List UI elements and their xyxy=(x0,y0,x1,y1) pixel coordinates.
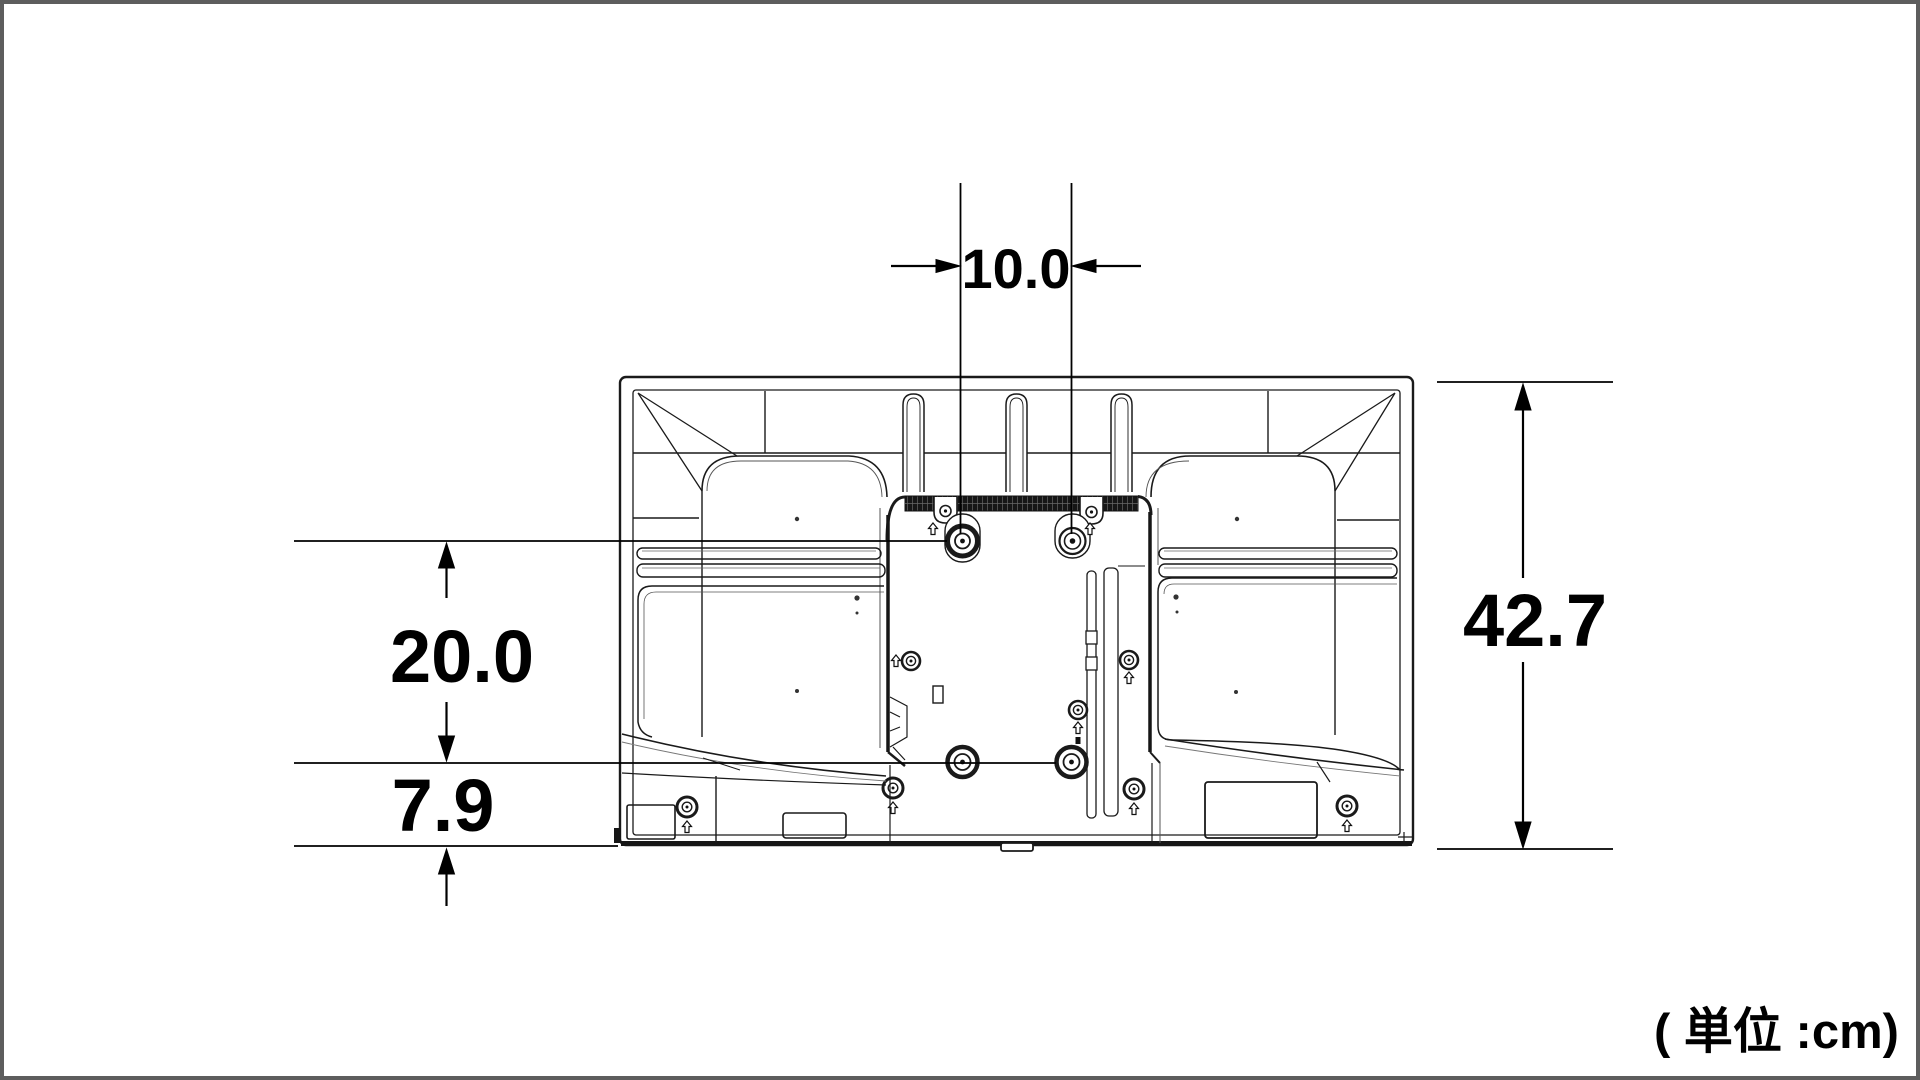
arrowhead-up xyxy=(1515,384,1531,410)
corner-fan-right xyxy=(1297,393,1395,491)
arrow-mark xyxy=(683,821,692,833)
arrow-mark xyxy=(1343,820,1352,832)
dimension-diagram-page: 10.0 20.0 7.9 42.7 ( 単位 :cm) xyxy=(0,0,1920,1080)
arrow-mark xyxy=(1125,672,1134,684)
screw xyxy=(1069,701,1087,719)
unit-note: ( 単位 :cm) xyxy=(1654,1005,1899,1059)
tv-rear-outline xyxy=(614,377,1413,851)
arrowhead-up xyxy=(439,543,455,568)
vesa-holes xyxy=(945,514,1090,777)
arrowhead-down xyxy=(1515,822,1531,848)
screw xyxy=(1120,651,1138,669)
vesa-hole-bottom-right xyxy=(1057,747,1087,777)
dim-left-column xyxy=(294,541,1056,906)
center-label xyxy=(783,813,846,838)
arrowhead-up xyxy=(439,849,455,874)
chassis-screws xyxy=(677,523,1357,833)
connector-panel xyxy=(1205,782,1317,838)
dim-label-vertical-spacing: 20.0 xyxy=(390,615,534,698)
arrow-mark xyxy=(1074,722,1083,734)
cable-hooks xyxy=(903,394,1132,492)
tv-bottom-tab xyxy=(1001,843,1033,851)
cable-hook-middle xyxy=(1006,394,1027,492)
cable-hook-right xyxy=(1111,394,1132,492)
dim-label-horizontal-spacing: 10.0 xyxy=(962,237,1071,300)
arrowhead-down xyxy=(439,736,455,761)
tv-left-foot xyxy=(614,828,621,843)
dim-label-overall-height: 42.7 xyxy=(1463,579,1607,662)
screw xyxy=(1337,796,1357,816)
screw xyxy=(902,652,920,670)
vent-slots xyxy=(637,548,1397,577)
bottom-chin xyxy=(622,734,1404,843)
arrowhead-left xyxy=(1072,260,1096,273)
lower-panels xyxy=(638,578,1400,770)
arrow-mark xyxy=(892,655,901,667)
arrow-mark xyxy=(1130,803,1139,815)
corner-fan-left xyxy=(638,393,737,491)
tv-rear-dimension-drawing: 10.0 20.0 7.9 42.7 ( 単位 :cm) xyxy=(0,0,1920,1080)
cable-hook-left xyxy=(903,394,924,492)
pilot-dots xyxy=(795,517,1239,694)
dim-label-bottom-offset: 7.9 xyxy=(392,764,495,847)
screw xyxy=(1124,779,1144,799)
arrowhead-right xyxy=(936,260,960,273)
vesa-hole-bottom-left xyxy=(948,747,978,777)
screw xyxy=(677,797,697,817)
hinge-bracket xyxy=(890,697,907,760)
arrow-mark xyxy=(929,523,938,535)
